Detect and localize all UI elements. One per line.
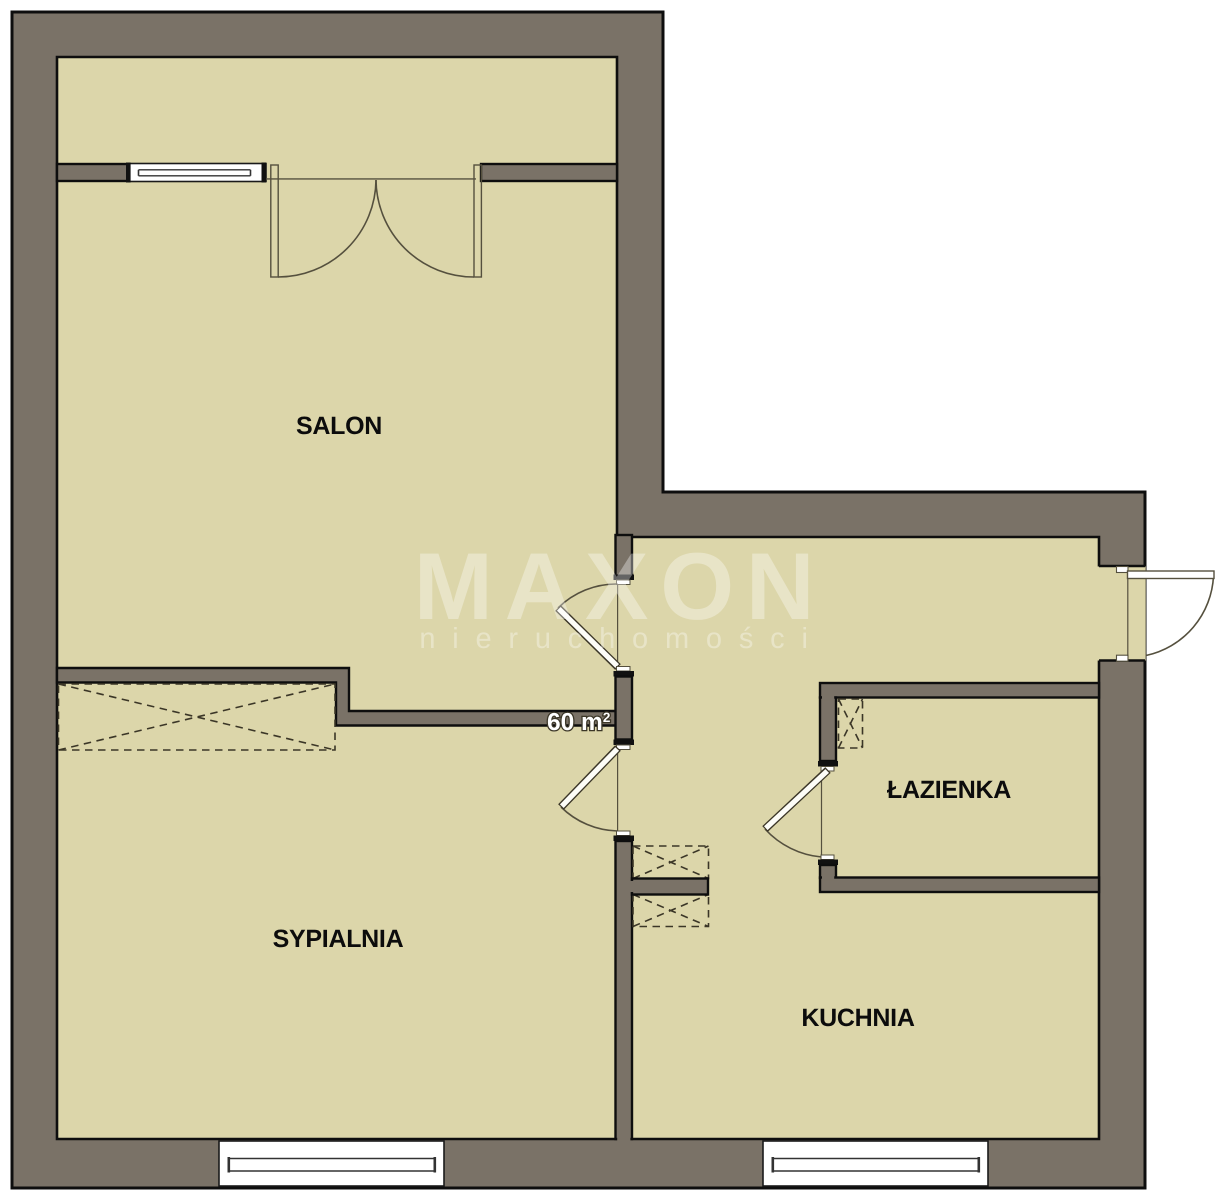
- svg-text:nieruchomości: nieruchomości: [419, 623, 824, 655]
- svg-text:SALON: SALON: [296, 412, 382, 440]
- svg-text:SYPIALNIA: SYPIALNIA: [273, 925, 404, 953]
- svg-text:KUCHNIA: KUCHNIA: [801, 1004, 914, 1032]
- svg-text:60 m2: 60 m2: [547, 709, 610, 736]
- svg-text:ŁAZIENKA: ŁAZIENKA: [887, 776, 1011, 804]
